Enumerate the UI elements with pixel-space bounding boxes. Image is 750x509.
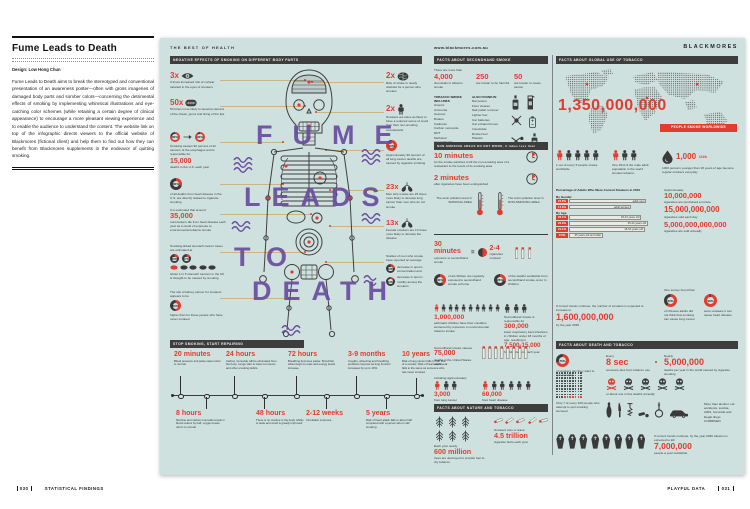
stat-caption: from heart disease	[482, 398, 542, 402]
stat-cigarettes-sold: Approximately 10,000,000 cigarettes are …	[664, 188, 738, 233]
causes-icons-row	[606, 402, 702, 418]
section-header-nature: FACTS ABOUT NATURE AND TOBACCO	[434, 404, 548, 412]
stat-caption: 1000 persons younger than 18 years of ag…	[662, 166, 738, 174]
stat-lung-deaths: 3,000 from lung cancer	[434, 381, 474, 402]
child-icon	[495, 304, 500, 312]
stat-caption: 3 times increased risk of nuclear catara…	[170, 80, 226, 88]
tree-icon	[434, 430, 445, 442]
skull-icon	[640, 378, 651, 390]
cigarette-icon	[494, 346, 498, 359]
stat-caption: Approximately 90 percent of all lung can…	[386, 153, 428, 166]
bottle-pin-icon	[606, 402, 612, 418]
list-items: Rat poison Floor cleaner Nail polish rem…	[472, 99, 508, 141]
section-header-global: FACTS ABOUT GLOBAL USE OF TOBACCO	[556, 56, 738, 64]
page-footer: 030 STATISTICAL FINDINGS PLAYFUL DATA 03…	[0, 486, 750, 500]
section-header-death: FACTS ABOUT DEATH AND TOBACCO	[556, 341, 738, 349]
clock-icon	[526, 173, 538, 185]
survey-china: One survey found that 60%of Chinese adul…	[664, 288, 738, 321]
stat-mouth-cancer: 50x 50 times more likely to develop canc…	[170, 99, 226, 116]
cigarette-icon	[506, 346, 510, 359]
gauge-96: 96%	[704, 294, 717, 307]
lungs-icon	[401, 218, 413, 228]
page-number-left: 030	[20, 486, 29, 491]
bar-track: 45-64 years old	[569, 227, 645, 232]
insecticide-icon	[511, 115, 522, 126]
stat-value: 8 sec	[606, 358, 650, 367]
cigarette-icon	[518, 346, 522, 359]
child-icon	[521, 304, 528, 313]
deaths-incl-lead: Including approximately	[434, 376, 467, 380]
bar-value: 9.5%	[556, 233, 568, 238]
person-icon	[621, 150, 629, 161]
bar-label: adult women	[614, 206, 629, 210]
stat-nonsmoker-deaths: It is estimated that around 35,000 nonsm…	[170, 208, 226, 233]
skull-icon	[674, 378, 685, 390]
divider	[12, 169, 154, 170]
stat-stomach-cancer: Smoking-linked stomach cancer cases are …	[170, 244, 226, 280]
bar-label: adult men	[633, 200, 645, 204]
divider	[733, 486, 734, 491]
cigarette-butt-icon	[504, 416, 515, 427]
divider	[12, 58, 154, 59]
stat-caption: cigarettes smoked	[490, 252, 512, 260]
tree-icon	[447, 430, 458, 442]
stat-2-minutes: 2 minutes after cigarettes have been ext…	[434, 174, 516, 186]
bar-value: 22.0%	[556, 221, 568, 226]
person-icon	[574, 150, 582, 161]
thermo-caption-nonsmoking: The toxin pollution level in NON-SMOKING…	[508, 196, 548, 204]
timeline-milestone: 5 yearsRisk of heart attack falls to abo…	[366, 410, 418, 430]
stat-caption: About 1 in 5 stomach cancers in the UK i…	[170, 272, 226, 280]
person-icon	[565, 150, 573, 161]
smokers-badge: PEOPLE SMOKE WORLDWIDE	[660, 124, 737, 132]
coffin-row	[556, 434, 645, 449]
stat-caption: decrease in sperm concentration and	[397, 265, 428, 273]
bar-label: 65 years old and older	[575, 234, 602, 238]
stat-caption: of the deaths worldwide from secondhand …	[508, 274, 548, 287]
timeline-node	[414, 394, 419, 399]
timeline-tick	[264, 397, 265, 409]
stat-caption: Men who smoke are 23 times more likely t…	[386, 192, 428, 209]
chart-bar-row: 22.0%25-44 years old	[556, 221, 654, 226]
design-credit: Design: Low Hong Chun	[12, 67, 154, 72]
bar-track: 18-24 years old	[569, 215, 641, 220]
divider	[12, 36, 154, 38]
stomach-icon	[189, 265, 197, 270]
timeline-tick	[206, 397, 207, 409]
timeline-milestone: 72 hoursBreathing becomes easier. Bronch…	[288, 351, 340, 371]
stat-esophagus: 80% 90% Smoking causes 90 percent of all…	[170, 132, 226, 169]
stat-lead: Secondhand smoke is responsible for	[504, 315, 548, 323]
cigarette-butt-icon	[516, 416, 527, 426]
stat-shs-deaths: Secondhand smoke causes 75,000 deaths in…	[434, 346, 478, 366]
infographic-poster: THE BEST OF HEALTH NEGATIVE EFFECTS OF S…	[160, 38, 745, 475]
stat-value: 300,000	[504, 323, 548, 330]
timeline-milestone: 48 hoursThere is no nicotine in the body…	[256, 410, 306, 426]
stat-caption: Female smokers are 13 times more likely …	[386, 228, 428, 241]
half-pie-icon	[478, 248, 487, 257]
smokers-chart: Percentage of Adults Who Were Current Sm…	[556, 188, 654, 239]
list-items: Arsenic Ammonia Acetone Butane Cadmium C…	[434, 103, 470, 145]
stat-value: 3x	[170, 72, 179, 80]
corkscrew-icon	[627, 403, 633, 418]
child-icon	[454, 304, 459, 312]
child-icon	[448, 304, 453, 312]
bar-track: adult men	[569, 199, 646, 204]
stat-heart-deaths: 60,000 from heart disease	[482, 381, 542, 402]
pills-icon	[638, 410, 649, 418]
stat-value: 3,000	[434, 392, 474, 399]
stat-caption: cigarettes are purchased a minute	[664, 200, 738, 204]
stat-caption: someone dies from tobacco use	[606, 368, 650, 372]
person-icon	[556, 150, 564, 161]
quit-success-caption: Only 7 of every 100 people who attempt t…	[556, 401, 600, 414]
timeline-tick	[234, 376, 235, 394]
child-icon	[441, 304, 446, 312]
mouth-icon	[185, 99, 197, 107]
stat-caption: decrease in sperm motility among the smo…	[397, 275, 428, 288]
stat-value: 10,000,000	[664, 192, 738, 200]
stat-cataract: 3x 3 times increased risk of nuclear cat…	[170, 72, 226, 89]
person-icon	[482, 381, 489, 390]
stat-value: 600 million	[434, 448, 486, 456]
chem-list-includes: TOBACCO SMOKE INCLUDES Arsenic Ammonia A…	[434, 95, 470, 145]
coffin-icon	[579, 434, 588, 449]
stomach-icon	[170, 265, 178, 270]
stat-caption: exposure to secondhand smoke	[434, 256, 468, 264]
stat-value: 2-4	[490, 245, 512, 252]
stat-caption: 1 out of every 5 people smoke worldwide	[556, 163, 604, 171]
chem-value: 50	[514, 73, 544, 81]
stat-caption: of all children are regularly exposed to…	[448, 274, 488, 287]
blackmores-logo: BLACKMORES	[660, 44, 738, 50]
stomach-icon	[208, 265, 216, 270]
section-header-secondhand: FACTS ABOUT SECONDHAND SMOKE	[434, 56, 548, 64]
chem-caption: are known to be harmful	[476, 81, 510, 85]
sidebar: Fume Leads to Death Design: Low Hong Chu…	[12, 36, 154, 170]
coffin-icon	[625, 434, 634, 449]
cigarette-icon	[500, 346, 504, 359]
timeline-milestone: 24 hoursCarbon monoxide will be eliminat…	[226, 351, 278, 371]
cigarette-butt-icon	[493, 416, 504, 426]
bar-value: 17.3%	[556, 205, 568, 210]
bar-track: 25-44 years old	[569, 221, 648, 226]
stat-value: 7,000,000	[654, 442, 738, 451]
cigarette-icon	[488, 346, 492, 359]
timeline-node	[232, 394, 237, 399]
brain-icon	[397, 72, 409, 81]
stat-stroke: 2x Risk of stroke is nearly doubled for …	[386, 72, 428, 94]
tree-icon	[460, 416, 471, 428]
person-icon	[583, 150, 591, 161]
divider	[12, 167, 154, 168]
stat-value: 60,000	[482, 392, 542, 399]
cigarette-icon	[482, 346, 486, 359]
chart-bar-row: 21.5%adult men	[556, 199, 654, 204]
eye-icon	[181, 72, 194, 80]
tree-icon	[460, 430, 471, 442]
stat-caption: deaths in the U.S. each year	[170, 165, 226, 169]
stat-2030-deaths: If current trends continue, by the year …	[654, 434, 738, 455]
gauge-30: 30%	[170, 178, 182, 190]
stat-caption: from lung cancer	[434, 398, 474, 402]
thermometer-icon	[476, 192, 484, 216]
equals-sign: =	[471, 250, 475, 256]
coffin-icon	[568, 434, 577, 449]
bottle-icon	[512, 95, 519, 110]
stat-caption: asthmatic children have their condition …	[434, 321, 500, 334]
stat-30-minutes: 30 minutesexposure to secondhand smoke =…	[434, 241, 548, 264]
stat-caption: One third of the male adult population i…	[612, 163, 652, 176]
tree-icon	[434, 416, 445, 428]
stat-butts: Smokers toss or leave 4.5 trillion cigar…	[494, 418, 548, 444]
person-icon	[516, 381, 523, 390]
gauge-60: 60%	[664, 294, 677, 307]
cigarette-icon	[515, 247, 519, 259]
stat-value: 35,000	[170, 212, 226, 220]
person-icon	[508, 381, 515, 390]
stat-caption: of Chinese adults did not think that smo…	[664, 309, 698, 322]
stat-5-million-deaths: Nearly 5,000,000 deaths per year in the …	[664, 354, 738, 376]
cigarette-icon	[528, 247, 532, 259]
child-icon	[461, 304, 466, 312]
stat-value: 75,000	[434, 350, 478, 357]
divider	[17, 486, 18, 491]
timeline-tick	[326, 397, 327, 409]
timeline-milestone: 8 hoursNicotine and carbon monoxide leve…	[176, 410, 226, 430]
stat-caption: were unaware it can cause heart disease	[704, 309, 738, 317]
stomach-icon	[199, 265, 207, 270]
stat-teen-smokers: 1,000 /24h 1000 persons younger than 18 …	[662, 150, 738, 174]
household-items-icons	[510, 94, 548, 148]
car-icon	[669, 408, 689, 418]
stat-value: 30 minutes	[434, 241, 468, 256]
section-header-body-parts: NEGATIVE EFFECTS OF SMOKING ON DIFFERENT…	[170, 56, 422, 64]
bar-value: 20.1%	[556, 215, 568, 220]
tree-icon	[447, 416, 458, 428]
page-number-right: 031	[722, 486, 731, 491]
footer-left: 030 STATISTICAL FINDINGS	[14, 486, 104, 491]
book-title: PLAYFUL DATA	[667, 486, 705, 491]
stat-value: 5,000,000	[664, 358, 738, 367]
lungs-icon	[401, 182, 413, 192]
stat-caption: deaths in the United States each year	[434, 358, 478, 366]
stat-heart-disease: 30% of all deaths from heart disease in …	[170, 178, 226, 205]
stat-smoker-trend: If current trends continue, the number o…	[556, 304, 652, 327]
person-icon	[491, 381, 498, 390]
bar-track: adult women	[569, 205, 631, 210]
project-description: Fume Leads to Death aims to break the st…	[12, 78, 154, 160]
bar-value: 21.1%	[556, 227, 568, 232]
figure-word-to: TO	[234, 242, 303, 273]
stat-lung-cancer-women: 13x Female smokers are 13 times more lik…	[386, 218, 428, 241]
drop-icon	[662, 150, 673, 164]
timeline-endpoint	[171, 394, 174, 397]
skull-icon	[657, 378, 668, 390]
skull-row: or about one in five deaths annually	[606, 378, 736, 396]
stat-caption: of all deaths from heart disease in the …	[170, 192, 226, 205]
chart-bar-row: 17.3%adult women	[556, 205, 654, 210]
stat-caption: for the smoke particles to fill the non-…	[434, 160, 516, 168]
chart-bar-row: 9.5%65 years old and older	[556, 233, 654, 238]
children-exposure: 40%of all children are regularly exposed…	[434, 274, 548, 287]
stat-10-minutes: 10 minutes for the smoke particles to fi…	[434, 152, 516, 168]
person-icon	[434, 381, 441, 390]
gauge-40: 40%	[434, 274, 446, 286]
figure-word-death: DEATH	[252, 276, 398, 307]
stat-lead: Smoking causes 90 percent of all cancers…	[170, 144, 226, 157]
stat-lung-cancer-men: 23x Men who smoke are 23 times more like…	[386, 182, 428, 209]
person-icon	[525, 381, 532, 390]
stat-caption: by the year 2025	[556, 323, 652, 327]
cigarette-icon	[524, 346, 528, 359]
stat-caption: cigarettes sold each day	[664, 215, 738, 219]
stat-value: 15,000,000,000	[664, 206, 738, 214]
person-icon	[630, 150, 638, 161]
skull-icon	[623, 378, 634, 390]
chart-bar-row: 20.1%18-24 years old	[556, 215, 654, 220]
gauge-20: 20%	[170, 254, 179, 263]
stat-value: 50x	[170, 99, 183, 107]
chem-caption: chemicals in tobacco smoke	[434, 81, 472, 89]
stat-unit: /24h	[699, 155, 707, 159]
person-icon	[397, 104, 405, 115]
child-icon	[504, 304, 511, 313]
child-icon	[434, 304, 439, 312]
battery-icon	[529, 116, 536, 128]
divider	[718, 486, 719, 491]
cigarette-row	[482, 346, 528, 359]
stat-caption: lower respiratory tract infections in ch…	[504, 330, 548, 343]
global-smokers-count: 1,350,000,000	[558, 98, 667, 115]
stat-value: 1,000	[676, 153, 696, 161]
timeline-milestone: 2-12 weeksCirculation improves.	[306, 410, 358, 422]
chem-stats: 4,000chemicals in tobacco smoke 250are k…	[434, 73, 548, 89]
divider	[434, 234, 548, 235]
timeline-node	[294, 394, 299, 399]
stat-lead: If current trends continue, the number o…	[556, 304, 652, 312]
stat-one-in-five: 1 out of every 5 people smoke worldwide	[556, 150, 604, 171]
stat-lead: Smoking-linked stomach cancer cases are …	[170, 244, 226, 252]
chapter-label: STATISTICAL FINDINGS	[45, 486, 104, 491]
figure-word-leads: LEADS	[244, 182, 391, 213]
stat-value: 2 minutes	[434, 174, 516, 182]
stat-caption: higher than for those people who have ne…	[170, 313, 226, 321]
coffin-icon	[614, 434, 623, 449]
spray-bottle-icon	[527, 95, 536, 110]
stat-caption: after cigarettes have been extinguished	[434, 182, 516, 186]
knife-icon	[617, 402, 622, 418]
figure-word-fume: FUME	[256, 120, 413, 151]
stomach-icon	[180, 265, 188, 270]
thermo-caption-smoking: The toxin pollution level in SMOKING ARE…	[434, 196, 472, 204]
chem-caption: are known to cause cancer	[514, 81, 544, 89]
stat-one-third-males: One third of the male adult population i…	[612, 150, 652, 175]
stat-caption: 50 times more likely to develop cancers …	[170, 107, 226, 115]
gauge-17: 17%	[182, 254, 191, 263]
timeline-milestone: 3-9 monthsCoughs, wheezing and breathing…	[348, 351, 398, 371]
person-icon	[499, 381, 506, 390]
timeline-tick	[356, 376, 357, 394]
stat-value: 1,000,000	[434, 314, 500, 321]
clock-icon	[526, 151, 538, 163]
child-icon	[513, 304, 520, 313]
stat-value: 4.5 trillion	[494, 432, 548, 440]
gauge-80: 80%	[170, 132, 180, 142]
divider	[12, 61, 154, 62]
page-title: Fume Leads to Death	[12, 43, 154, 54]
chem-value: 250	[476, 73, 510, 81]
chem-value: 4,000	[434, 73, 472, 81]
stat-caption: deaths per year in the world caused by c…	[664, 368, 738, 376]
timeline-node	[178, 394, 183, 399]
bar-label: 25-44 years old	[628, 222, 647, 226]
skull-icon	[606, 378, 617, 390]
separator-dot	[655, 361, 657, 363]
nonsmoking-bar: NON-SMOKING AREAS DO NOT WORK, it takes …	[434, 142, 548, 150]
survey-lead: One survey found that	[664, 288, 738, 292]
coffin-icon	[591, 434, 600, 449]
timeline-tick	[386, 397, 387, 409]
coffin-icon	[602, 434, 611, 449]
chart-title: Percentage of Adults Who Were Current Sm…	[556, 188, 648, 192]
section-header-timeline: STOP SMOKING, START REPAIRING	[170, 340, 304, 348]
timeline-tick	[296, 376, 297, 394]
child-icon	[481, 304, 486, 312]
stat-caption: trees are destroyed to provide fuel to d…	[434, 456, 486, 464]
child-icon	[475, 304, 480, 312]
coffin-icon	[637, 434, 646, 449]
stat-caption: cigarette butts each year	[494, 440, 548, 444]
stat-caption: cigarettes are sold annually	[664, 229, 738, 233]
person-icon	[443, 381, 450, 390]
stat-caption: Risk of stroke is nearly doubled for a p…	[386, 81, 428, 94]
causes-caption: More than alcohol, car accidents, suicid…	[704, 402, 738, 423]
child-icon	[468, 304, 473, 312]
stat-value: 10 minutes	[434, 152, 516, 160]
thermometer-icon	[496, 192, 504, 216]
gauge-70: 70%	[556, 354, 569, 367]
stat-8-seconds: Every 8 sec someone dies from tobacco us…	[606, 354, 650, 372]
list-title: TOBACCO SMOKE INCLUDES	[434, 95, 470, 103]
cigarette-butt-icon	[538, 416, 549, 425]
coffin-icon	[556, 434, 565, 449]
timeline-milestone: 20 minutesBlood pressure and pulse rates…	[174, 351, 222, 367]
child-icon	[488, 304, 493, 312]
timeline-tick	[180, 376, 181, 394]
bar-label: 18-24 years old	[621, 216, 640, 220]
person-icon	[612, 150, 620, 161]
chart-bar-row: 21.1%45-64 years old	[556, 227, 654, 232]
website-url: www.blackmores.com.au	[434, 45, 488, 50]
noose-icon	[654, 402, 664, 418]
stat-value: 5,000,000,000,000	[664, 221, 738, 229]
gauge-28: 28%	[494, 274, 506, 286]
timeline-endpoint	[421, 394, 424, 397]
gauge-50: 50%	[170, 300, 181, 311]
stat-lead: The risk of kidney cancer for smokers ap…	[170, 290, 226, 298]
stat-caption: people a year worldwide	[654, 451, 738, 455]
stat-lead: Studies of men who smoke have reported a…	[386, 254, 428, 262]
quit-success-grid	[556, 372, 583, 399]
divider	[552, 55, 553, 455]
cigarette-icon	[521, 247, 525, 259]
stat-caption: nonsmokers die from heart disease each y…	[170, 220, 226, 233]
bar-track: 65 years old and older	[569, 233, 603, 238]
cigarette-icon	[512, 346, 516, 359]
stat-value: 1,600,000,000	[556, 313, 652, 322]
cigarette-butt-icon	[527, 416, 538, 427]
